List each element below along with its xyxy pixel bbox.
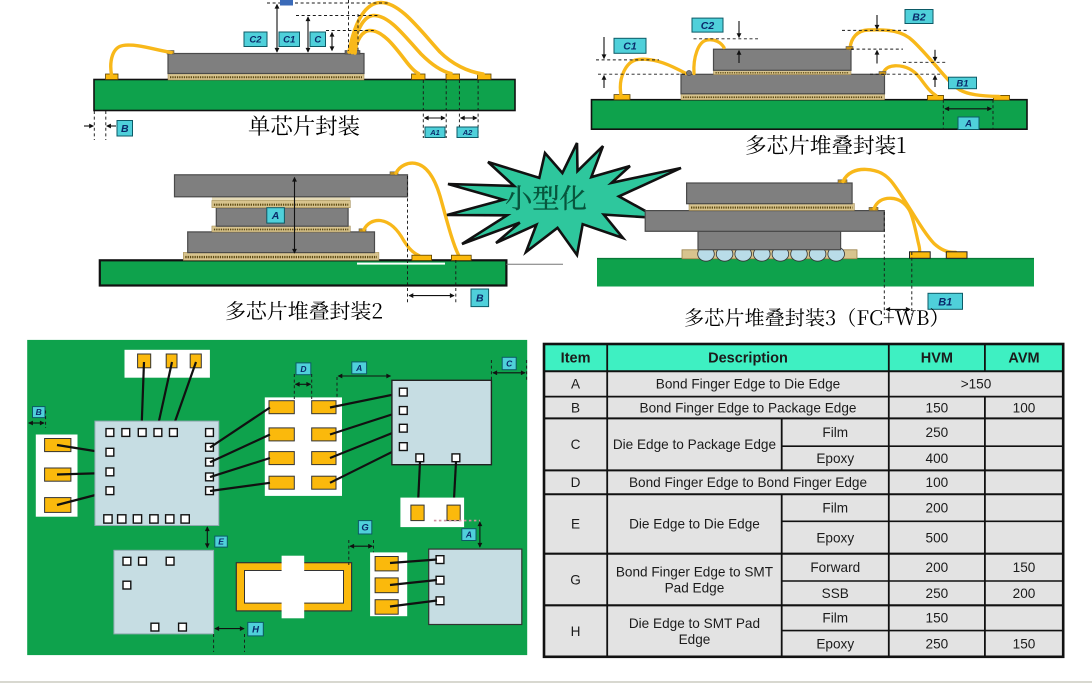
svg-text:Epoxy: Epoxy [816, 530, 854, 545]
svg-text:Die Edge to Die Edge: Die Edge to Die Edge [629, 517, 760, 532]
svg-text:B: B [571, 400, 580, 415]
svg-text:SSB: SSB [822, 586, 849, 601]
svg-text:400: 400 [926, 451, 949, 466]
svg-text:150: 150 [1013, 636, 1036, 651]
svg-text:Bond Finger Edge to Die Edge: Bond Finger Edge to Die Edge [656, 377, 840, 392]
svg-text:200: 200 [926, 560, 949, 575]
svg-text:Edge: Edge [679, 632, 711, 647]
svg-text:C1: C1 [623, 41, 637, 53]
svg-text:500: 500 [926, 530, 949, 545]
svg-text:G: G [570, 572, 581, 587]
svg-text:Film: Film [822, 501, 848, 516]
svg-text:Epoxy: Epoxy [816, 636, 854, 651]
svg-text:A1: A1 [429, 128, 440, 137]
svg-text:Die Edge to Package Edge: Die Edge to Package Edge [613, 437, 776, 452]
svg-text:>150: >150 [961, 377, 992, 392]
svg-text:Item: Item [561, 351, 591, 367]
svg-text:Pad Edge: Pad Edge [665, 580, 725, 595]
svg-text:D: D [300, 364, 306, 374]
svg-text:250: 250 [926, 425, 949, 440]
svg-text:100: 100 [926, 475, 949, 490]
svg-text:B: B [121, 123, 129, 135]
svg-text:Bond Finger Edge to SMT: Bond Finger Edge to SMT [616, 564, 773, 579]
svg-text:250: 250 [926, 636, 949, 651]
svg-text:E: E [571, 517, 580, 532]
svg-text:B2: B2 [912, 11, 926, 23]
svg-text:Film: Film [822, 425, 848, 440]
svg-text:C: C [506, 359, 513, 369]
svg-text:B1: B1 [956, 78, 968, 89]
svg-text:A: A [355, 363, 362, 373]
svg-text:150: 150 [1013, 560, 1036, 575]
svg-text:C2: C2 [701, 20, 715, 32]
svg-text:C1: C1 [283, 35, 295, 46]
svg-text:G: G [361, 523, 369, 534]
svg-text:B: B [36, 407, 42, 417]
svg-text:Forward: Forward [810, 560, 860, 575]
svg-text:B1: B1 [938, 296, 952, 308]
svg-text:Film: Film [822, 611, 848, 626]
svg-text:Epoxy: Epoxy [816, 451, 854, 466]
svg-text:HVM: HVM [921, 351, 953, 367]
svg-text:Bond Finger Edge to Package Ed: Bond Finger Edge to Package Edge [640, 400, 857, 415]
svg-text:A2: A2 [462, 128, 473, 137]
svg-text:150: 150 [926, 400, 949, 415]
svg-text:C2: C2 [249, 35, 262, 46]
svg-text:C: C [314, 35, 321, 46]
svg-text:A: A [964, 119, 972, 130]
svg-text:E: E [218, 537, 224, 547]
svg-text:A: A [465, 530, 472, 540]
svg-text:H: H [571, 624, 581, 639]
svg-text:A: A [271, 210, 280, 222]
svg-text:Bond Finger Edge to Bond Fing: Bond Finger Edge to Bond Finger Edge [629, 475, 867, 490]
svg-text:Die Edge to SMT Pad: Die Edge to SMT Pad [629, 616, 760, 631]
svg-text:250: 250 [926, 586, 949, 601]
svg-text:AVM: AVM [1008, 351, 1039, 367]
svg-text:150: 150 [926, 611, 949, 626]
svg-text:A: A [571, 377, 581, 392]
svg-text:B: B [476, 293, 484, 305]
svg-text:100: 100 [1013, 400, 1036, 415]
svg-text:H: H [252, 625, 260, 636]
svg-text:200: 200 [1013, 586, 1036, 601]
svg-text:Description: Description [708, 351, 788, 367]
svg-text:D: D [571, 475, 581, 490]
svg-text:C: C [571, 437, 581, 452]
svg-text:200: 200 [926, 501, 949, 516]
